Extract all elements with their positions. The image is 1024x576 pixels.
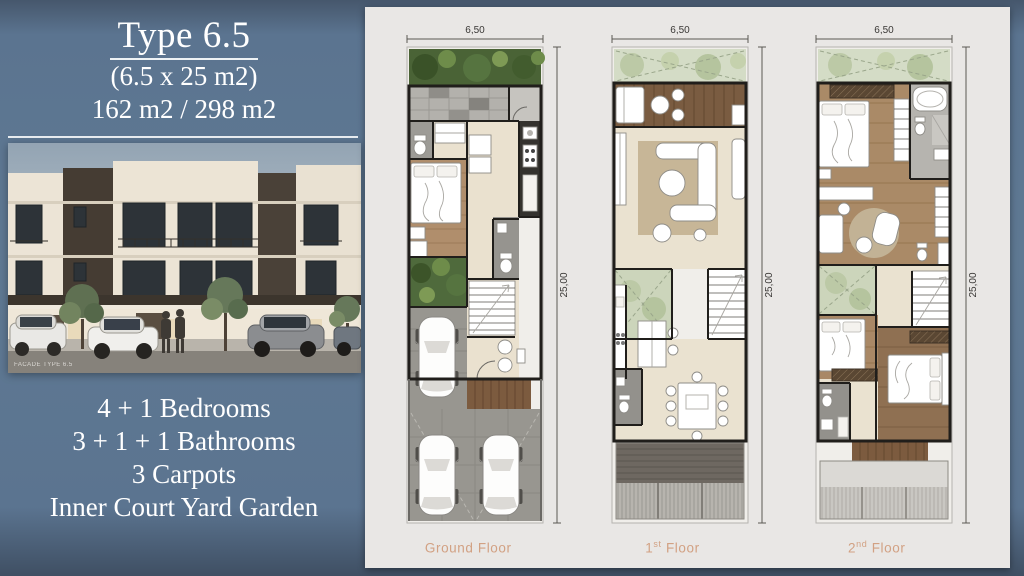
svg-text:6,50: 6,50 [670, 25, 690, 36]
height-dimension: 25,00 [758, 47, 774, 523]
stairs [708, 269, 746, 339]
car-3 [479, 435, 523, 515]
page-title: Type 6.5 [110, 16, 259, 60]
width-dimension: 6,50 [816, 25, 952, 43]
width-dimension: 6,50 [612, 25, 748, 43]
info-panel: Type 6.5 (6.5 x 25 m2) 162 m2 / 298 m2 [8, 0, 360, 138]
feature-carpots: 3 Carpots [8, 458, 360, 491]
svg-text:6,50: 6,50 [874, 25, 894, 36]
stairs [912, 271, 950, 327]
bedroom [409, 159, 467, 257]
rear-deck [616, 443, 744, 519]
svg-text:6,50: 6,50 [466, 25, 486, 36]
floor-label-first: 1st Floor [645, 539, 729, 556]
floorplan-first: 6,50 25,00 [602, 23, 774, 556]
first-floor-drawing [612, 47, 748, 523]
floor-label-second: 2nd Floor [848, 539, 935, 556]
features-list: 4 + 1 Bedrooms 3 + 1 + 1 Bathrooms 3 Car… [8, 392, 360, 524]
stairs [469, 281, 515, 335]
facade-photo: FACADE TYPE 6.5 [8, 143, 361, 373]
width-dimension: 6,50 [407, 25, 543, 43]
inner-court-garden [409, 257, 468, 307]
floorplan-ground: 6,50 25,00 [397, 23, 569, 556]
ground-floor-plan: 6,50 25,00 [397, 23, 569, 531]
bedroom-3 [878, 327, 950, 441]
feature-garden: Inner Court Yard Garden [8, 491, 360, 524]
powder-room [614, 369, 642, 425]
facade-illustration [8, 143, 361, 373]
living-room [614, 127, 746, 269]
height-dimension: 25,00 [962, 47, 978, 523]
powder-room [493, 217, 519, 279]
slide-background: Type 6.5 (6.5 x 25 m2) 162 m2 / 298 m2 [0, 0, 1024, 576]
floorplans-panel: 6,50 25,00 [365, 7, 1010, 568]
feature-bathrooms: 3 + 1 + 1 Bathrooms [8, 425, 360, 458]
balcony-deck [614, 83, 746, 127]
facade-caption: FACADE TYPE 6.5 [14, 362, 73, 368]
second-floor-plan: 6,50 25,00 [806, 23, 978, 531]
size-subtitle: (6.5 x 25 m2) [8, 60, 360, 93]
floorplan-second: 6,50 25,00 [806, 23, 978, 556]
floor-label-ground: Ground Floor [425, 539, 542, 556]
divider-line [8, 136, 358, 138]
bedroom-2 [818, 315, 878, 381]
master-bathroom [910, 83, 950, 179]
roof-garden [818, 49, 950, 83]
car-1 [415, 317, 459, 397]
second-floor-drawing [816, 47, 952, 523]
rear-garden [409, 49, 545, 86]
feature-bedrooms: 4 + 1 Bedrooms [8, 392, 360, 425]
first-floor-plan: 6,50 25,00 [602, 23, 774, 531]
area-subtitle: 162 m2 / 298 m2 [8, 93, 360, 126]
inner-court [818, 265, 876, 315]
svg-text:25,00: 25,00 [764, 272, 774, 297]
height-dimension: 25,00 [553, 47, 569, 523]
roof-garden [614, 49, 746, 83]
kitchen [519, 121, 541, 217]
ground-floor-drawing [407, 47, 545, 523]
bathroom-2 [818, 383, 850, 441]
svg-text:25,00: 25,00 [559, 272, 569, 297]
car-2 [415, 435, 459, 515]
svg-text:25,00: 25,00 [968, 272, 978, 297]
